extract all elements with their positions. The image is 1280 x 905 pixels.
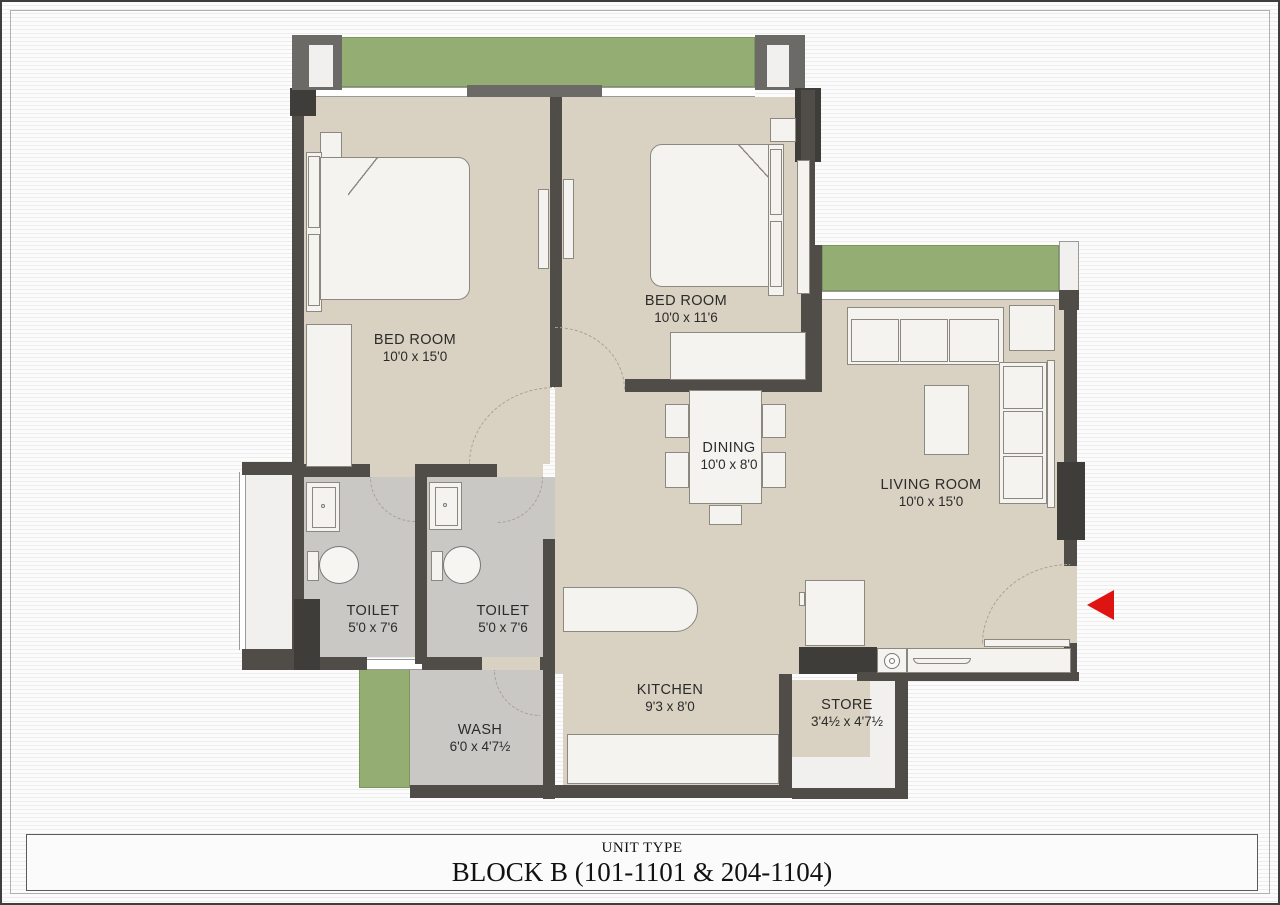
fridge xyxy=(805,580,865,646)
sink-drain-icon xyxy=(889,658,895,664)
toilet2-washbasin xyxy=(429,482,462,530)
room-label-kitchen: KITCHEN9'3 x 8'0 xyxy=(570,682,770,715)
floor-plan-page: BED ROOM10'0 x 15'0 BED ROOM10'0 x 11'6 … xyxy=(0,0,1280,905)
threshold-toilet2 xyxy=(497,464,543,477)
window-top-right xyxy=(766,44,790,88)
bed1-pillow xyxy=(308,156,320,228)
wall-toilet1-south-b xyxy=(422,657,482,670)
entry-door-leaf xyxy=(984,639,1070,647)
window-toilet1 xyxy=(367,659,422,670)
kitchen-counter-round xyxy=(563,587,698,632)
window-top-left xyxy=(308,44,334,88)
room-label-wash: WASH6'0 x 4'7½ xyxy=(400,722,560,755)
window-duct xyxy=(239,472,246,650)
basin-drain-icon xyxy=(443,503,447,507)
wall-entry-column xyxy=(1057,462,1085,540)
wall-living-east-mid xyxy=(1064,540,1077,566)
kitchen-sink-unit xyxy=(877,648,907,673)
bed2-blanket-fold xyxy=(738,145,769,179)
bed2-niche xyxy=(797,160,810,294)
balcony-bedrooms xyxy=(302,37,755,87)
sofa-seat xyxy=(1003,411,1043,454)
toilet1-bowl-icon xyxy=(319,546,359,584)
wall-kitchen-store-divider xyxy=(779,674,792,792)
toilet2-cistern xyxy=(431,551,443,581)
room-label-toilet2: TOILET5'0 x 7'6 xyxy=(433,603,573,636)
basin-inner xyxy=(435,487,458,526)
bed2-side-table xyxy=(770,118,796,142)
room-label-living: LIVING ROOM10'0 x 15'0 xyxy=(831,477,1031,510)
wall-lintel-middle xyxy=(467,85,602,97)
bed1-bed xyxy=(320,157,470,300)
bed2-pillow xyxy=(770,149,782,215)
unit-type-label: UNIT TYPE xyxy=(27,840,1257,857)
dining-chair xyxy=(665,404,689,438)
bed2-pillow2 xyxy=(770,221,782,287)
wall-duct-north xyxy=(242,462,304,475)
balcony-cap xyxy=(1059,241,1079,292)
block-name-label: BLOCK B (101-1101 & 204-1104) xyxy=(27,857,1257,887)
wall-bed1-west xyxy=(292,90,304,670)
living-side-chair xyxy=(1009,305,1055,351)
room-label-toilet1: TOILET5'0 x 7'6 xyxy=(303,603,443,636)
bed1-blanket-fold xyxy=(348,158,378,196)
store-floor-tile2 xyxy=(792,757,872,789)
kitchen-platform xyxy=(567,734,779,784)
sliding-door-panel-bed1 xyxy=(538,189,549,269)
living-l-sofa-back xyxy=(1047,360,1055,508)
sofa-seat xyxy=(900,319,948,362)
living-coffee-table xyxy=(924,385,969,455)
dining-chair xyxy=(762,404,786,438)
living-sofa xyxy=(847,307,1004,365)
wall-living-east-top xyxy=(1064,298,1077,464)
sofa-seat xyxy=(851,319,899,362)
toilet1-washbasin xyxy=(306,482,340,532)
sliding-door-panel-bed2 xyxy=(563,179,574,259)
fridge-handle xyxy=(799,592,805,606)
toilet2-bowl-icon xyxy=(443,546,481,584)
sofa-seat xyxy=(949,319,999,362)
wall-toilet2-south xyxy=(540,657,555,670)
room-label-bed2: BED ROOM10'0 x 11'6 xyxy=(586,293,786,326)
threshold-wash xyxy=(482,657,540,670)
bed1-pillow2 xyxy=(308,234,320,306)
room-label-dining: DINING10'0 x 8'0 xyxy=(649,440,809,473)
toilet1-cistern xyxy=(307,551,319,581)
entrance-arrow-icon xyxy=(1087,590,1114,620)
room-label-store: STORE3'4½ x 4'7½ xyxy=(767,697,927,730)
dish-icon xyxy=(913,658,971,664)
duct-shaft xyxy=(245,475,292,649)
room-label-bed1: BED ROOM10'0 x 15'0 xyxy=(315,332,515,365)
wall-kitchen-counter-band xyxy=(799,647,877,674)
dining-chair xyxy=(709,505,742,525)
balcony-living xyxy=(822,245,1059,291)
title-block: UNIT TYPE BLOCK B (101-1101 & 204-1104) xyxy=(26,834,1258,891)
sofa-seat xyxy=(1003,366,1043,409)
wall-store-south xyxy=(792,788,908,799)
wall-living-west xyxy=(810,245,822,392)
threshold-toilet1 xyxy=(370,464,415,477)
wall-under-counter xyxy=(857,672,1079,681)
bed2-wardrobe xyxy=(670,332,806,380)
kitchen-counter-long xyxy=(907,648,1071,673)
wall-toilet2-north xyxy=(427,464,497,477)
wall-corner-nw xyxy=(290,88,316,116)
basin-drain-icon xyxy=(321,504,325,508)
window-sill-living xyxy=(822,291,1059,300)
wall-kitchen-south xyxy=(410,785,792,798)
